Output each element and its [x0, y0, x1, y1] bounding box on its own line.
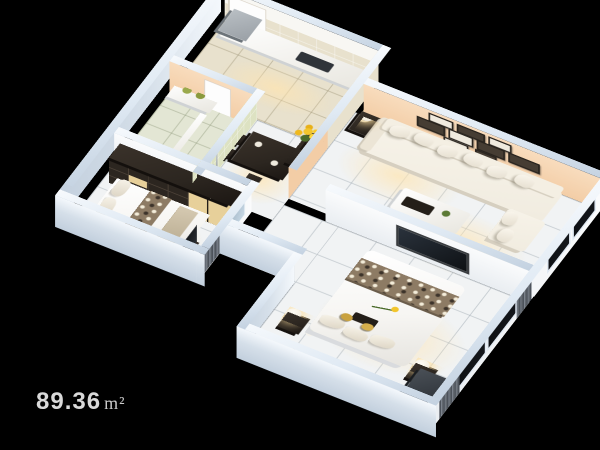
- area-unit: m²: [104, 393, 125, 413]
- area-value: 89.36: [36, 388, 101, 415]
- floor-plan-render: 89.36m²: [0, 0, 600, 450]
- coffee-table-tray: [400, 196, 435, 216]
- area-label: 89.36m²: [36, 388, 125, 416]
- apartment-3d-scene: [27, 21, 600, 450]
- table-setting: [269, 159, 279, 166]
- table-setting: [253, 141, 263, 148]
- coffee-table-plant: [440, 209, 452, 217]
